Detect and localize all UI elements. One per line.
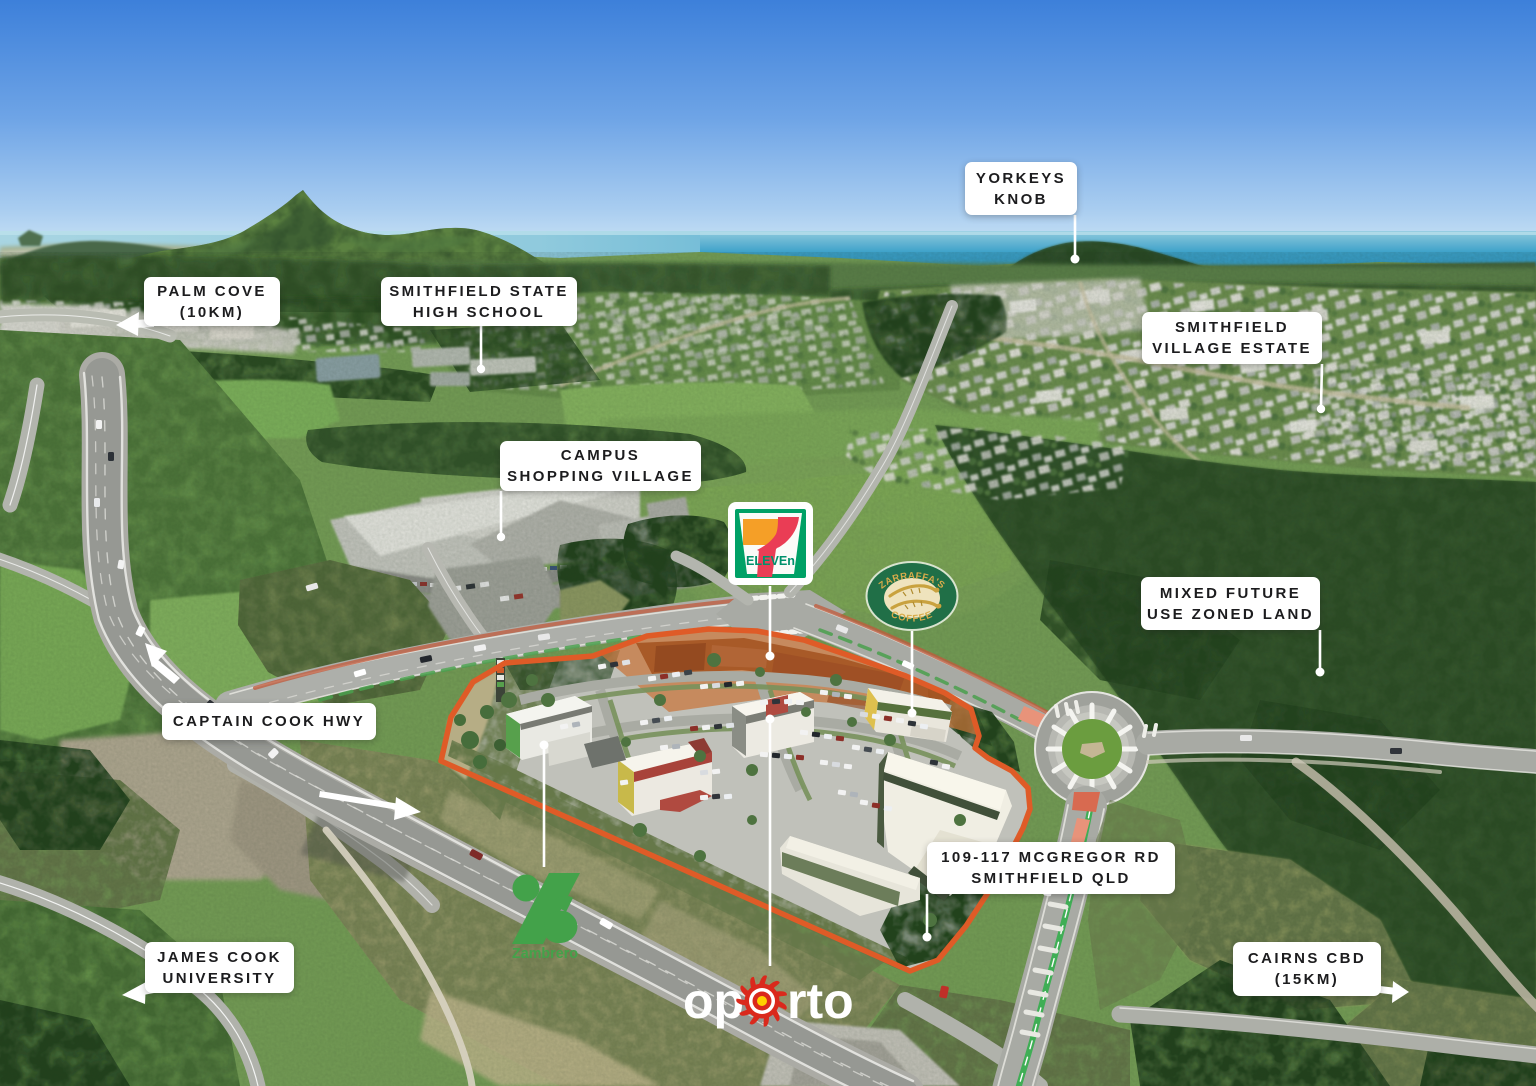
svg-text:ELEVEn: ELEVEn	[746, 554, 795, 568]
svg-text:rto: rto	[787, 973, 854, 1029]
svg-text:Zambrero: Zambrero	[512, 945, 578, 962]
svg-text:op: op	[683, 973, 744, 1029]
